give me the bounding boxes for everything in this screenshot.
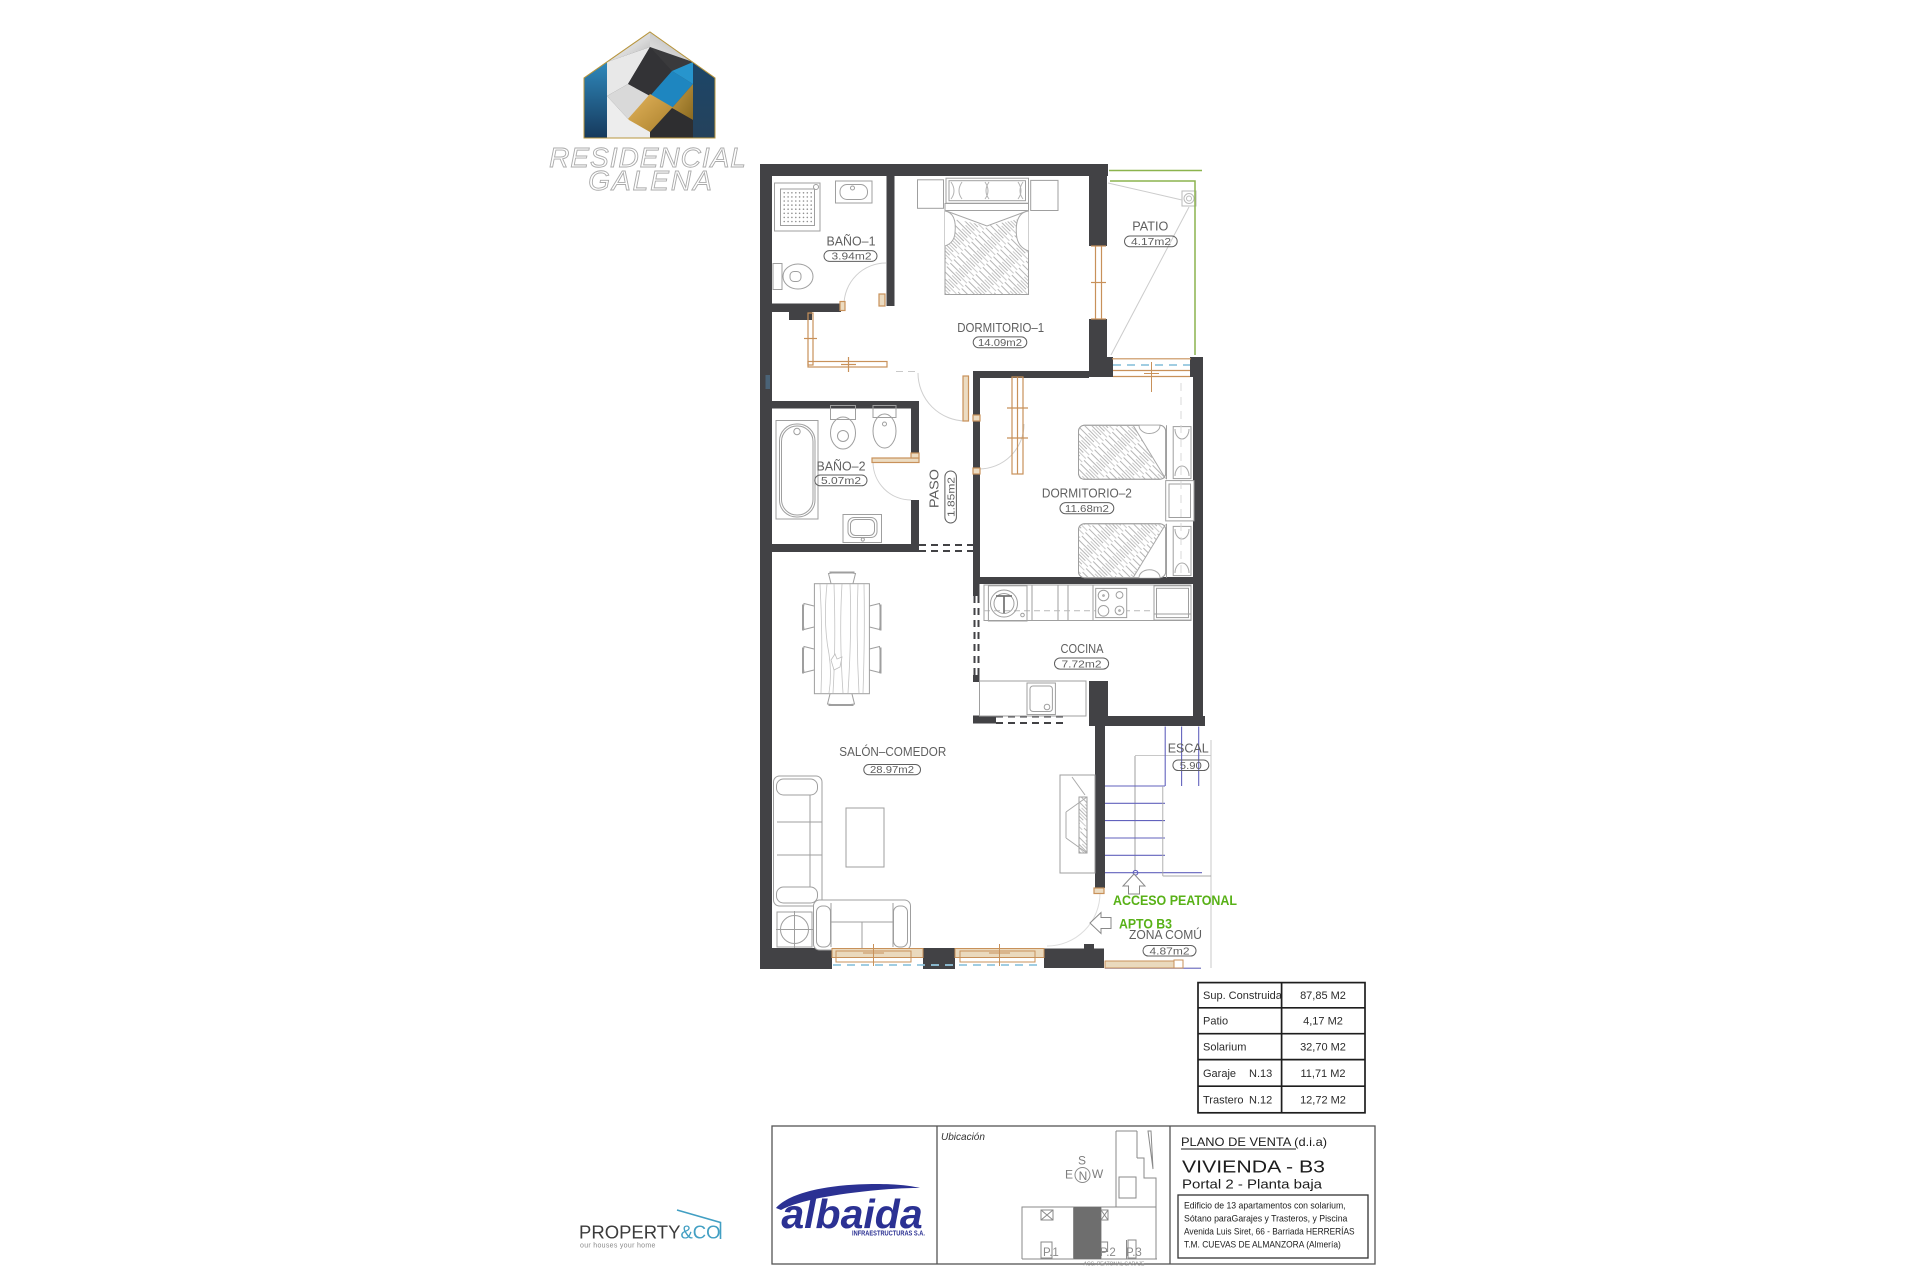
svg-text:4.17m2: 4.17m2	[1131, 236, 1171, 248]
svg-text:28.97m2: 28.97m2	[870, 764, 914, 776]
svg-text:11,71 M2: 11,71 M2	[1300, 1068, 1345, 1080]
svg-text:Sótano paraGarajes y Trasteros: Sótano paraGarajes y Trasteros, y Piscin…	[1184, 1213, 1348, 1224]
svg-text:Solarium: Solarium	[1203, 1042, 1246, 1054]
svg-text:5.90: 5.90	[1180, 760, 1202, 772]
svg-text:12,72 M2: 12,72 M2	[1300, 1095, 1346, 1107]
svg-text:N: N	[1079, 1169, 1088, 1183]
svg-text:PLANO DE VENTA (d.i.a): PLANO DE VENTA (d.i.a)	[1181, 1135, 1327, 1149]
svg-text:14.09m2: 14.09m2	[978, 337, 1022, 349]
svg-text:Trastero: Trastero	[1203, 1095, 1244, 1107]
svg-text:ACC. PEATONAL GARAJE: ACC. PEATONAL GARAJE	[1084, 1262, 1145, 1268]
svg-text:S: S	[1078, 1154, 1086, 1168]
svg-text:N.13: N.13	[1249, 1068, 1272, 1080]
svg-text:ACCESO PEATONAL: ACCESO PEATONAL	[1113, 893, 1237, 908]
svg-text:5.07m2: 5.07m2	[821, 475, 861, 487]
svg-text:Sup. Construida: Sup. Construida	[1203, 990, 1283, 1002]
svg-text:our houses your home: our houses your home	[580, 1243, 656, 1250]
svg-text:T.M. CUEVAS DE ALMANZORA (Alme: T.M. CUEVAS DE ALMANZORA (Almería)	[1184, 1239, 1341, 1250]
svg-text:BAÑO–1: BAÑO–1	[827, 233, 876, 248]
svg-text:P.1: P.1	[1043, 1247, 1059, 1259]
svg-text:E: E	[1065, 1168, 1073, 1182]
svg-text:W: W	[1092, 1167, 1104, 1181]
svg-text:3.94m2: 3.94m2	[832, 251, 872, 263]
svg-text:87,85 M2: 87,85 M2	[1300, 990, 1346, 1002]
svg-text:Edificio de 13 apartamentos co: Edificio de 13 apartamentos con solarium…	[1184, 1200, 1346, 1211]
svg-text:1.85m2: 1.85m2	[946, 477, 958, 517]
svg-text:7.72m2: 7.72m2	[1062, 658, 1102, 670]
svg-text:INFRAESTRUCTURAS S.A.: INFRAESTRUCTURAS S.A.	[852, 1231, 925, 1238]
svg-text:32,70 M2: 32,70 M2	[1300, 1042, 1346, 1054]
svg-text:P.2: P.2	[1100, 1247, 1116, 1259]
svg-text:Portal 2 - Planta baja: Portal 2 - Planta baja	[1182, 1177, 1323, 1192]
svg-text:N.12: N.12	[1249, 1095, 1272, 1107]
svg-text:Ubicación: Ubicación	[941, 1132, 985, 1143]
svg-text:BAÑO–2: BAÑO–2	[817, 459, 866, 474]
svg-text:Avenida Luis Siret, 66 - Barri: Avenida Luis Siret, 66 - Barriada HERRER…	[1184, 1226, 1355, 1237]
svg-text:PROPERTY&CO: PROPERTY&CO	[579, 1222, 721, 1243]
svg-text:PATIO: PATIO	[1132, 219, 1168, 234]
svg-text:11.68m2: 11.68m2	[1065, 503, 1109, 515]
svg-text:DORMITORIO–2: DORMITORIO–2	[1042, 485, 1132, 500]
svg-text:Garaje: Garaje	[1203, 1068, 1236, 1080]
svg-text:COCINA: COCINA	[1061, 641, 1104, 656]
svg-text:PASO: PASO	[927, 469, 942, 508]
svg-text:DORMITORIO–1: DORMITORIO–1	[957, 320, 1044, 335]
svg-text:Patio: Patio	[1203, 1016, 1228, 1028]
svg-text:4,17 M2: 4,17 M2	[1303, 1016, 1343, 1028]
svg-text:4.87m2: 4.87m2	[1150, 945, 1190, 957]
svg-text:APTO B3: APTO B3	[1119, 917, 1172, 932]
svg-text:P.3: P.3	[1126, 1247, 1142, 1259]
svg-text:GALENA: GALENA	[588, 165, 714, 196]
svg-text:SALÓN–COMEDOR: SALÓN–COMEDOR	[839, 744, 946, 759]
svg-text:VIVIENDA - B3: VIVIENDA - B3	[1182, 1157, 1325, 1177]
svg-text:ESCAL: ESCAL	[1168, 741, 1209, 756]
